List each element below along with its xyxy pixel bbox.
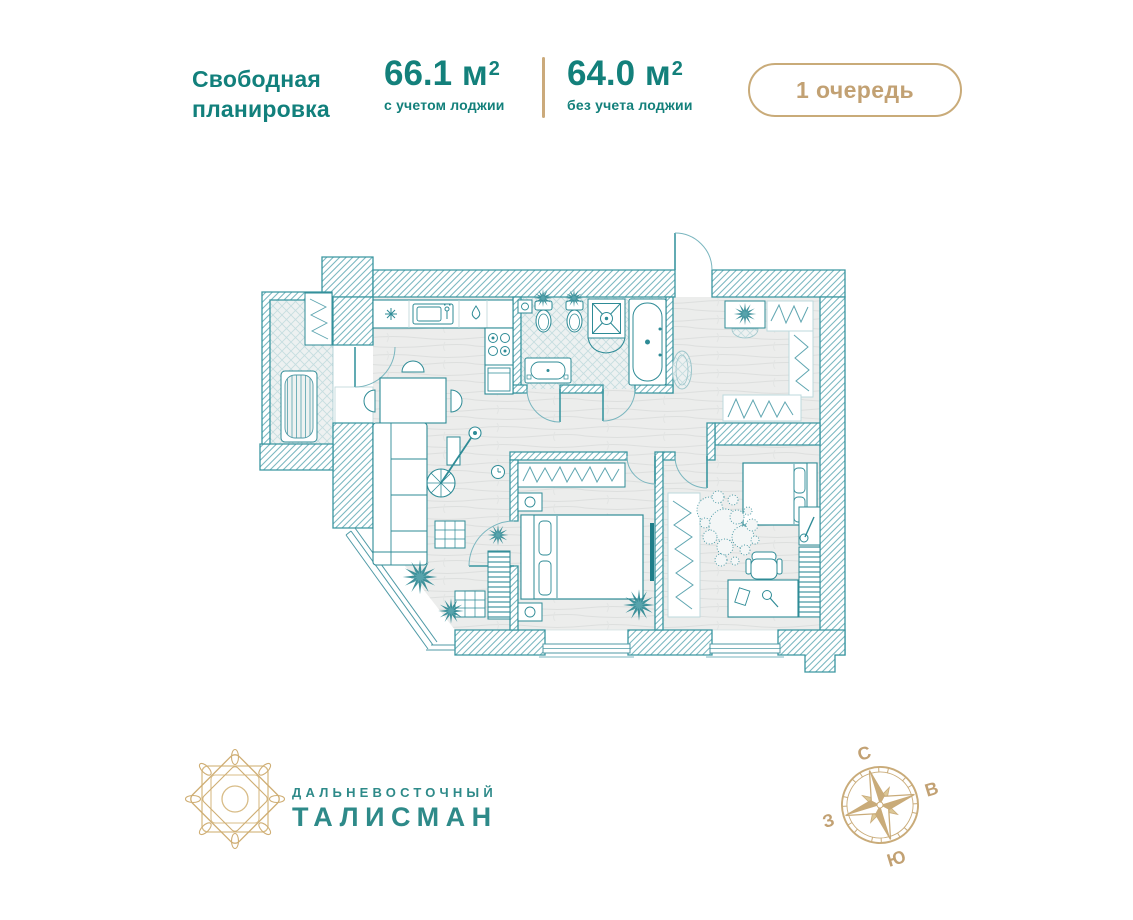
area-without-loggia: 64.0 м2 без учета лоджии xyxy=(567,52,693,113)
page-title: Свободная планировка xyxy=(192,64,330,124)
floor-plan-card: Свободная планировка 66.1 м2 с учетом ло… xyxy=(0,0,1133,920)
area-with-loggia-value: 66.1 м2 xyxy=(384,52,505,96)
area-with-loggia-label: с учетом лоджии xyxy=(384,97,505,113)
page-title-line2: планировка xyxy=(192,94,330,124)
compass-rose: С В Ю З xyxy=(815,740,945,870)
area-with-loggia-number: 66.1 м xyxy=(384,54,488,93)
area-with-loggia: 66.1 м2 с учетом лоджии xyxy=(384,52,505,113)
toilet xyxy=(566,301,583,332)
area-without-loggia-value: 64.0 м2 xyxy=(567,52,693,96)
page-title-line1: Свободная xyxy=(192,64,330,94)
compass-south-label: Ю xyxy=(885,846,909,870)
area-with-loggia-sup: 2 xyxy=(489,58,500,80)
header-divider xyxy=(542,57,545,118)
developer-name-bottom: ТАЛИСМАН xyxy=(292,802,498,833)
developer-logo-ornament xyxy=(185,745,285,857)
area-without-loggia-sup: 2 xyxy=(672,58,683,80)
floor-plan-drawing xyxy=(255,225,855,675)
compass-west-label: З xyxy=(820,810,837,832)
double-bed xyxy=(521,515,643,599)
developer-logo-text: ДАЛЬНЕВОСТОЧНЫЙ ТАЛИСМАН xyxy=(292,785,498,833)
bathtub xyxy=(629,299,666,385)
phase-badge: 1 очередь xyxy=(748,63,962,117)
compass-east-label: В xyxy=(923,778,941,801)
phase-badge-label: 1 очередь xyxy=(796,77,914,104)
compass-north-label: С xyxy=(855,742,873,765)
desk xyxy=(728,580,798,617)
area-without-loggia-number: 64.0 м xyxy=(567,54,671,93)
toilet xyxy=(535,301,552,332)
floor-lamp xyxy=(799,507,820,545)
developer-name-top: ДАЛЬНЕВОСТОЧНЫЙ xyxy=(292,785,498,800)
vanity-sink xyxy=(525,358,571,383)
area-without-loggia-label: без учета лоджии xyxy=(567,97,693,113)
